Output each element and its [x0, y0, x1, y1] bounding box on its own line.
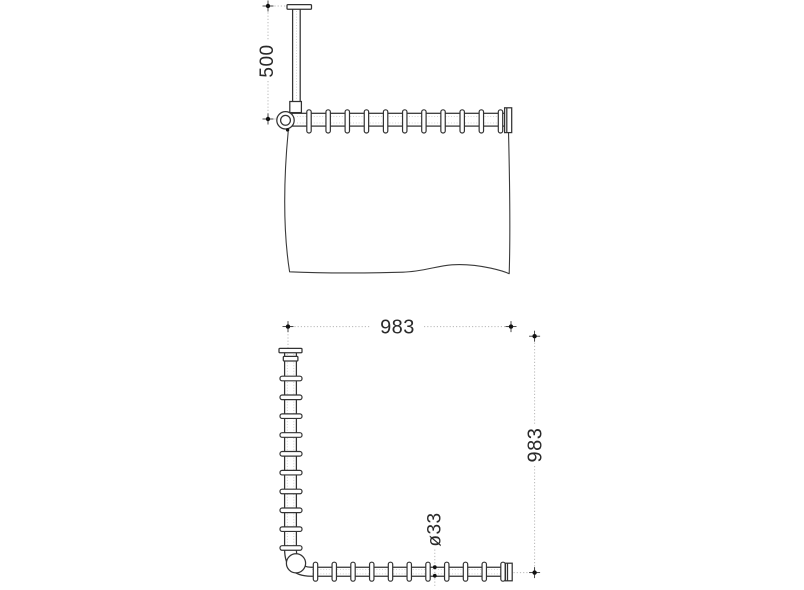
drawing-page: 500	[0, 0, 804, 590]
plan-view: 983 983 ø33	[279, 317, 547, 587]
curtain-ring	[501, 562, 505, 581]
shower-curtain	[285, 132, 510, 274]
front-view: 500	[257, 5, 512, 274]
curtain-ring	[403, 110, 407, 133]
rod-collar	[290, 102, 302, 113]
curtain-ring	[498, 110, 502, 133]
dim-label-depth-983: 983	[525, 428, 547, 463]
curtain-ring	[280, 470, 302, 475]
curtain-ring	[383, 110, 387, 133]
curtain-ring	[280, 452, 302, 457]
front-rail	[292, 113, 505, 126]
plan-wall-flange	[279, 348, 302, 361]
plan-side-curtain-rings	[280, 376, 302, 550]
curtain-ring	[280, 546, 302, 551]
curtain-ring	[280, 508, 302, 513]
curtain-ring	[280, 395, 302, 400]
curtain-ring	[388, 562, 392, 581]
plan-end-cap	[505, 563, 512, 581]
curtain-ring	[463, 562, 467, 581]
ceiling-rod	[287, 5, 312, 113]
curtain-ring	[326, 110, 330, 133]
curtain-ring	[460, 110, 464, 133]
dim-endpoint-dot	[286, 324, 290, 328]
dimension-drop-500: 500	[257, 6, 286, 119]
plan-rail	[285, 353, 506, 576]
curtain-ring	[479, 110, 483, 133]
dim-endpoint-dot	[266, 117, 270, 121]
curtain-ring	[280, 414, 302, 419]
curtain-ring	[426, 562, 430, 581]
dim-endpoint-dot	[509, 324, 513, 328]
technical-drawing: 500	[0, 0, 804, 590]
curtain-ring	[332, 562, 336, 581]
curtain-ring	[482, 562, 486, 581]
curtain-ring	[280, 527, 302, 532]
curtain-ring	[370, 562, 374, 581]
plan-rail-curtain-rings	[313, 562, 505, 581]
curtain-attachment-dot	[286, 128, 289, 131]
dim-endpoint-dot	[532, 570, 536, 574]
curtain-ring	[441, 110, 445, 133]
front-elbow-joint	[277, 112, 294, 129]
ceiling-flange	[287, 5, 312, 10]
dim-endpoint-dot	[532, 334, 536, 338]
dimension-endpoint-markers	[263, 1, 541, 579]
curtain-ring	[280, 489, 302, 494]
curtain-ring	[407, 562, 411, 581]
curtain-ring	[351, 562, 355, 581]
flange-collar	[283, 356, 298, 361]
dim-label-width-983: 983	[380, 317, 415, 339]
curtain-ring	[445, 562, 449, 581]
curtain-ring	[280, 433, 302, 438]
curtain-ring	[313, 562, 317, 581]
dimension-width-983: 983	[288, 317, 511, 348]
curtain-ring	[364, 110, 368, 133]
dim-endpoint-dot	[266, 4, 270, 8]
curtain-ring	[422, 110, 426, 133]
curtain-ring	[307, 110, 311, 133]
front-end-cap	[505, 108, 512, 133]
curtain-ring	[345, 110, 349, 133]
dim-label-diameter: ø33	[424, 512, 445, 546]
dimension-depth-983: 983	[514, 336, 547, 572]
curtain-ring	[280, 376, 302, 381]
dim-label-500: 500	[257, 44, 278, 77]
plan-elbow-joint	[286, 554, 305, 573]
